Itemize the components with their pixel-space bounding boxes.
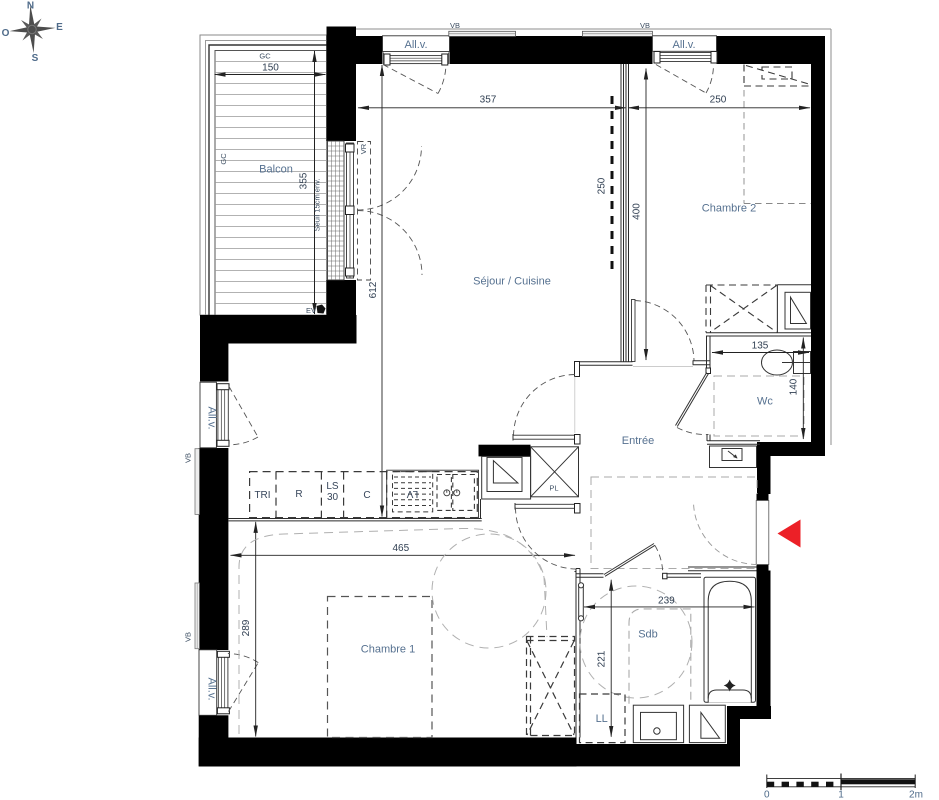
svg-text:239: 239 [658,595,675,606]
svg-text:All.v.: All.v. [404,39,427,51]
svg-text:400: 400 [632,203,643,220]
svg-text:O: O [2,28,10,39]
svg-text:VB: VB [450,21,460,30]
svg-text:LL: LL [596,713,608,725]
svg-text:30: 30 [327,492,339,503]
svg-text:LV: LV [406,488,418,499]
svg-text:Entrée: Entrée [622,435,654,447]
svg-text:Chambre 2: Chambre 2 [702,203,756,215]
svg-text:GC: GC [259,52,271,61]
svg-text:R: R [295,489,302,500]
svg-text:VB: VB [183,453,192,463]
svg-text:250: 250 [710,95,727,106]
svg-text:250: 250 [597,177,608,194]
svg-text:N: N [27,1,34,12]
svg-text:E: E [56,22,63,33]
svg-text:140: 140 [789,378,800,395]
svg-text:Balcon: Balcon [259,164,293,176]
svg-text:150: 150 [262,63,279,74]
svg-text:135: 135 [752,341,769,352]
svg-text:Wc: Wc [757,396,773,408]
svg-text:All.v.: All.v. [672,39,695,51]
svg-text:TRI: TRI [254,490,270,501]
svg-text:355: 355 [299,172,310,189]
svg-text:C: C [363,490,370,501]
svg-text:1: 1 [838,790,844,800]
svg-text:221: 221 [597,650,608,667]
svg-text:VR: VR [359,143,368,154]
svg-text:LS: LS [326,481,339,492]
svg-text:0: 0 [764,790,770,800]
svg-text:EV: EV [306,306,316,315]
svg-text:289: 289 [241,619,252,636]
svg-text:GC: GC [219,153,228,165]
svg-text:Seuil 15cm env.: Seuil 15cm env. [313,179,322,232]
svg-text:All.v.: All.v. [206,406,218,429]
svg-text:2m: 2m [909,790,923,800]
svg-text:465: 465 [392,543,409,554]
svg-text:Séjour / Cuisine: Séjour / Cuisine [473,276,551,288]
svg-text:PL: PL [549,484,558,493]
svg-text:S: S [32,53,39,64]
svg-text:VB: VB [640,21,650,30]
svg-text:612: 612 [368,281,379,298]
svg-text:357: 357 [480,95,497,106]
svg-text:All.v.: All.v. [206,677,218,700]
svg-text:Chambre 1: Chambre 1 [361,644,415,656]
svg-text:VB: VB [183,632,192,642]
svg-text:Sdb: Sdb [638,629,658,641]
